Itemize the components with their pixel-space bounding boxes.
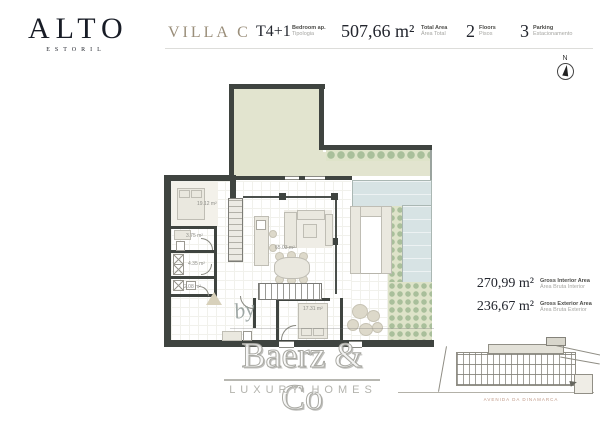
spec-typology-value: T4+1: [256, 23, 291, 41]
gross-exterior-area-value: 236,67 m²: [450, 299, 534, 315]
tv-console-icon: [325, 214, 333, 246]
room-area-label: 17.31 m²: [303, 306, 323, 312]
room-area-label: 4.35 m²: [188, 261, 205, 267]
wall: [171, 226, 217, 229]
brand-logo: ALTO ESTORIL: [28, 14, 124, 53]
toilet-icon: [176, 241, 185, 251]
pool-upper: [352, 180, 432, 208]
pillow-icon: [191, 190, 202, 198]
coffee-table-icon: [303, 224, 317, 238]
closet-icon: [173, 280, 184, 291]
wall: [164, 175, 236, 181]
garden-area-upper: [232, 88, 323, 176]
wall: [229, 84, 234, 176]
pebble-icon: [352, 304, 368, 319]
compass-icon: [557, 63, 574, 80]
compass-needle-icon: [562, 65, 569, 77]
spec-total-area-value: 507,66 m²: [341, 21, 414, 42]
hedge-row: [326, 150, 430, 161]
gross-interior-label-pt: Área Bruta Interior: [540, 284, 590, 290]
column: [279, 193, 286, 200]
living-wall: [335, 196, 337, 294]
wall: [230, 176, 236, 200]
elevation-slant-line: [438, 346, 447, 391]
spec-parking-label: Parking Estacionamento: [533, 25, 572, 37]
gross-exterior-label-pt: Área Bruta Exterior: [540, 307, 592, 313]
room-area-label: 3.75 m²: [186, 233, 203, 239]
header-divider: [165, 48, 593, 49]
wall: [319, 145, 432, 150]
room-area-label: 65.03 m²: [275, 245, 295, 251]
pool-side: [402, 205, 432, 284]
counter: [381, 206, 392, 274]
spec-typology-label: Bedroom ap. Tipologia: [292, 25, 326, 37]
building-elevation: AVENIDA DA DINAMARCA: [440, 330, 598, 406]
spec-floors-label: Floors Pisos: [479, 25, 496, 37]
spec-typology-label-pt: Tipologia: [292, 31, 326, 37]
gross-exterior-area-label: Gross Exterior Area Área Bruta Exterior: [540, 301, 592, 313]
brochure-page: ALTO ESTORIL VILLA C T4+1 Bedroom ap. Ti…: [0, 0, 600, 424]
watermark-tagline: LUXURY HOMES: [224, 384, 382, 396]
dining-table-icon: [274, 257, 310, 279]
wall: [164, 175, 171, 347]
spec-floors-label-pt: Pisos: [479, 31, 496, 37]
elevation-ground-line: [398, 392, 594, 393]
wall: [214, 226, 217, 296]
column: [331, 193, 338, 200]
wall: [171, 276, 217, 279]
watermark-divider: [224, 379, 380, 381]
spec-floors-value: 2: [466, 21, 475, 42]
spec-total-area-label-pt: Área Total: [421, 31, 447, 37]
north-compass: N: [552, 55, 578, 87]
gross-interior-area-value: 270,99 m²: [450, 276, 534, 292]
wall: [319, 84, 324, 148]
street-label: AVENIDA DA DINAMARCA: [466, 397, 576, 402]
cabinet-run: [228, 198, 243, 262]
window: [305, 176, 325, 180]
pebble-icon: [367, 310, 380, 322]
spec-parking-value: 3: [520, 21, 529, 42]
living-wall: [243, 196, 337, 198]
closet-icon: [173, 264, 184, 275]
sink-icon: [256, 220, 266, 230]
watermark-brand: Baerz & Co: [218, 334, 386, 418]
sofa-icon: [284, 212, 297, 248]
room-area-label: 2.08 m²: [184, 284, 201, 290]
brand-name: ALTO: [28, 14, 124, 44]
compass-north-label: N: [552, 55, 578, 62]
spec-parking-label-pt: Estacionamento: [533, 31, 572, 37]
wall: [229, 84, 325, 89]
room-area-label: 19.12 m²: [197, 201, 217, 207]
gross-interior-area-label: Gross Interior Area Área Bruta Interior: [540, 278, 590, 290]
pillow-icon: [179, 190, 190, 198]
stool-icon: [269, 230, 277, 238]
sofa-icon: [297, 210, 325, 220]
spec-total-area-label: Total Area Área Total: [421, 25, 447, 37]
brand-location: ESTORIL: [28, 47, 124, 53]
pebble-icon: [347, 319, 359, 331]
fold-line: [230, 328, 434, 329]
staircase: [258, 283, 322, 300]
elevation-facade: [456, 352, 576, 386]
planting-bed: [388, 282, 432, 340]
villa-title: VILLA C: [168, 24, 251, 42]
counter: [350, 206, 361, 274]
window: [285, 176, 299, 180]
